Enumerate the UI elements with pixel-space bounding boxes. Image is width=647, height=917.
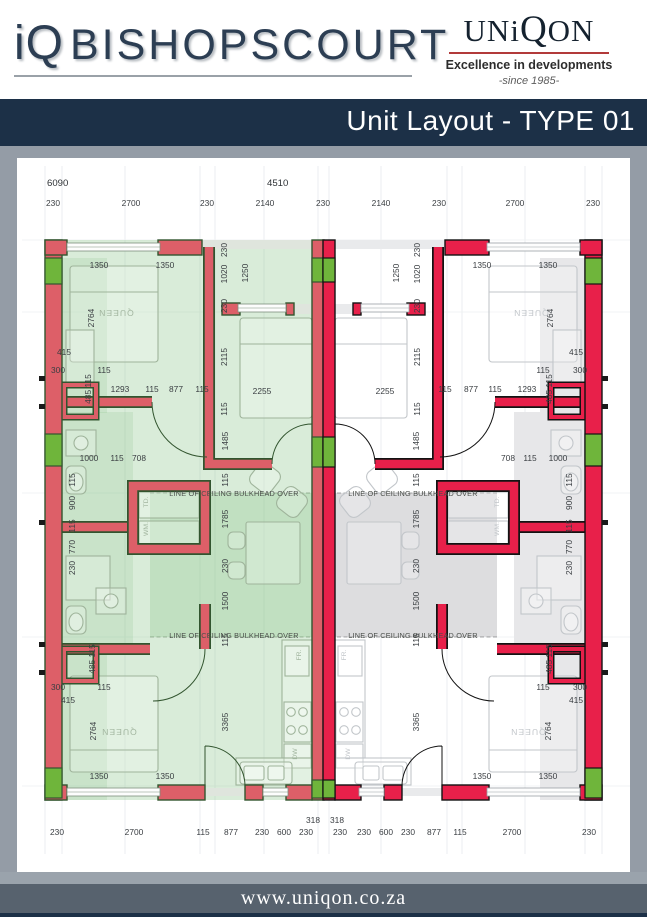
brand-on: ON [548,13,595,48]
washing-machine-label: WM. [143,522,150,536]
dim-label: 230 [412,243,422,257]
website-link[interactable]: www.uniqon.co.za [0,887,647,910]
dim-label: 115 [196,827,210,837]
dim-label: 1020 [219,264,229,283]
title-banner: Unit Layout - TYPE 01 [0,99,647,146]
dim-label: 1485 [411,431,421,450]
brand-name: UNiQON [423,8,635,51]
dim-label: 230 [219,299,229,313]
dim-label: 2700 [506,198,525,208]
bulkhead-note: LINE OF CEILING BULKHEAD OVER [348,489,477,498]
dim-label: 485 115 [83,374,93,404]
bed-label: QUEEN [513,308,549,318]
dim-label: 230 [255,827,269,837]
dim-label: 770 [564,540,574,554]
dim-label: 2140 [256,198,275,208]
left-unit [39,240,324,800]
dim-label: 2255 [253,386,272,396]
dim-label: 230 [586,198,600,208]
dim-label: 1350 [156,260,175,270]
dim-label: 877 [224,827,238,837]
dim-label: 115 [145,384,159,394]
dim-label: 115 [564,473,574,487]
dim-label: 1293 [111,384,130,394]
dim-label: 2764 [88,721,98,740]
dim-label: 2764 [86,308,96,327]
logo-text: iQBISHOPSCOURT [14,16,418,71]
uniqon-logo: UNiQON Excellence in developments -since… [423,8,635,87]
brand-un: UN [464,13,511,48]
dim-label: 115 [412,402,422,416]
dim-label: 415 [569,695,583,705]
dim-label: 1020 [412,264,422,283]
dim-label: 230 [432,198,446,208]
dim-label: 1000 [549,453,568,463]
plan-canvas: 6090 4510 230 2700 230 2140 230 2140 230… [17,158,630,872]
dim-label: 415 [61,695,75,705]
plan-frame: 6090 4510 230 2700 230 2140 230 2140 230… [0,146,647,884]
dim-label: 1000 [80,453,99,463]
dim-label: 115 [536,682,550,692]
brand-q: Q [520,9,548,50]
dim-label: 2115 [412,348,422,366]
logo-underline [14,75,412,77]
logo-name: BISHOPSCOURT [70,21,449,69]
footer-edge [0,913,647,917]
dim-label: 485 115 [544,374,554,404]
dishwasher-label: DW [292,748,299,760]
dim-label: 600 [379,827,393,837]
dim-label: 1350 [90,260,109,270]
dim-label: 877 [464,384,478,394]
bottom-dimensions: 318 318 230 2700 115 877 230 600 230 230… [50,815,596,837]
bulkhead-note: LINE OF CEILING BULKHEAD OVER [348,631,477,640]
dim-label: 1500 [411,591,421,610]
fridge-label: FR. [341,649,348,660]
bed-label: QUEEN [101,727,137,737]
dim-label: 1785 [411,509,421,528]
washing-machine-label: WM. [494,522,501,536]
dim-label: 1485 [220,431,230,450]
dim-label: 415 [569,347,583,357]
dim-label: 2700 [503,827,522,837]
dim-label: 1350 [156,771,175,781]
bed-label: QUEEN [510,727,546,737]
tumble-dryer-label: TD. [143,496,150,507]
header: iQBISHOPSCOURT UNiQON Excellence in deve… [0,0,647,99]
dim-label: 230 [333,827,347,837]
dim-label: 115 [488,384,502,394]
dim-label: 115 [67,473,77,487]
dim-overall-right: 4510 [267,178,288,189]
iq-bishopscourt-logo: iQBISHOPSCOURT [14,16,418,77]
logo-iq: iQ [14,17,64,70]
fridge-label: FR. [296,649,303,660]
top-dimensions: 6090 4510 230 2700 230 2140 230 2140 230… [46,178,600,208]
flyer-page: iQBISHOPSCOURT UNiQON Excellence in deve… [0,0,647,917]
dim-label: 230 [220,559,230,573]
dim-label: 115 [220,473,230,487]
dim-label: 600 [277,827,291,837]
dim-label: 1293 [518,384,537,394]
dim-label: 230 [564,561,574,575]
dim-label: 230 [50,827,64,837]
dim-label: 230 [582,827,596,837]
dim-label: 708 [132,453,146,463]
dim-label: 1350 [539,771,558,781]
tumble-dryer-label: TD. [494,496,501,507]
dim-label: 2255 [376,386,395,396]
brand-red-rule [449,52,609,54]
dim-label: 3365 [220,712,230,731]
dim-label: 900 [67,496,77,510]
dim-label: 115 [195,384,209,394]
dim-label: 1250 [240,263,250,282]
dim-label: 230 [46,198,60,208]
dim-label: 318 [306,815,320,825]
dim-label: 2115 [219,348,229,366]
bed-label: QUEEN [98,308,134,318]
dim-label: 115 [523,453,537,463]
brand-tagline: Excellence in developments [423,58,635,72]
dim-label: 770 [67,540,77,554]
dim-label: 230 [219,243,229,257]
brand-i: i [510,13,520,48]
dim-label: 300 [51,365,65,375]
dim-label: 415 [57,347,71,357]
dim-label: 230 [357,827,371,837]
dim-label: 877 [427,827,441,837]
dim-label: 230 [299,827,313,837]
dim-label: 485 115 [87,644,97,674]
brand-since: -since 1985- [423,75,635,87]
dim-label: 1350 [90,771,109,781]
dim-label: 708 [501,453,515,463]
dim-label: 115 [411,473,421,487]
dim-label: 230 [411,559,421,573]
dim-label: 2700 [125,827,144,837]
dim-label: 115 [67,519,77,533]
dim-label: 115 [97,682,111,692]
dishwasher-label: DW [345,748,352,760]
dim-label: 230 [412,299,422,313]
dim-label: 230 [401,827,415,837]
dim-label: 1500 [220,591,230,610]
dim-label: 115 [110,453,124,463]
page-title: Unit Layout - TYPE 01 [346,105,635,137]
dim-label: 300 [51,682,65,692]
dim-overall-left: 6090 [47,178,68,189]
dim-label: 230 [316,198,330,208]
footer-gray-band [0,872,647,884]
dim-label: 1250 [391,263,401,282]
dim-label: 115 [219,402,229,416]
dim-label: 1785 [220,509,230,528]
dim-label: 1350 [473,260,492,270]
dim-label: 877 [169,384,183,394]
floor-plan: 6090 4510 230 2700 230 2140 230 2140 230… [17,158,630,872]
dim-label: 3365 [411,712,421,731]
dim-label: 115 [453,827,467,837]
dim-label: 300 [573,682,587,692]
bulkhead-note: LINE OF CEILING BULKHEAD OVER [169,631,298,640]
dim-label: 485 115 [544,644,554,674]
dim-label: 230 [200,198,214,208]
dim-label: 230 [67,561,77,575]
footer-bar: www.uniqon.co.za [0,884,647,913]
dim-label: 115 [438,384,452,394]
dim-label: 1350 [539,260,558,270]
dim-label: 318 [330,815,344,825]
bulkhead-note: LINE OF CEILING BULKHEAD OVER [169,489,298,498]
dim-label: 1350 [473,771,492,781]
dim-label: 115 [564,519,574,533]
dim-label: 900 [564,496,574,510]
dim-label: 115 [536,365,550,375]
dim-label: 2140 [372,198,391,208]
dim-label: 2700 [122,198,141,208]
dim-label: 115 [97,365,111,375]
dim-label: 300 [573,365,587,375]
